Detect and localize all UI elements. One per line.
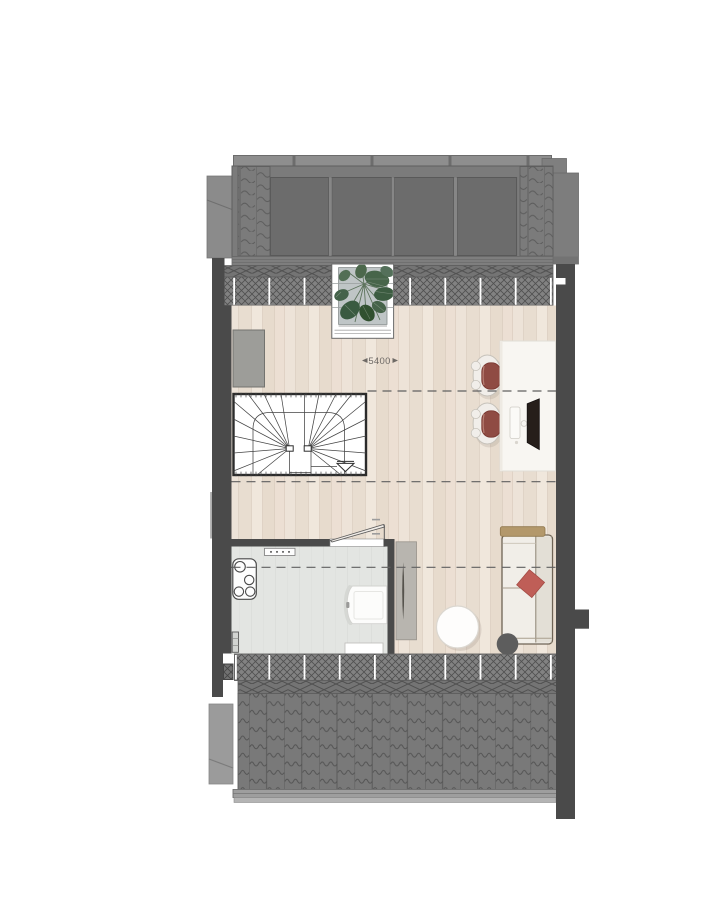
svg-text:5400: 5400 bbox=[368, 356, 390, 367]
